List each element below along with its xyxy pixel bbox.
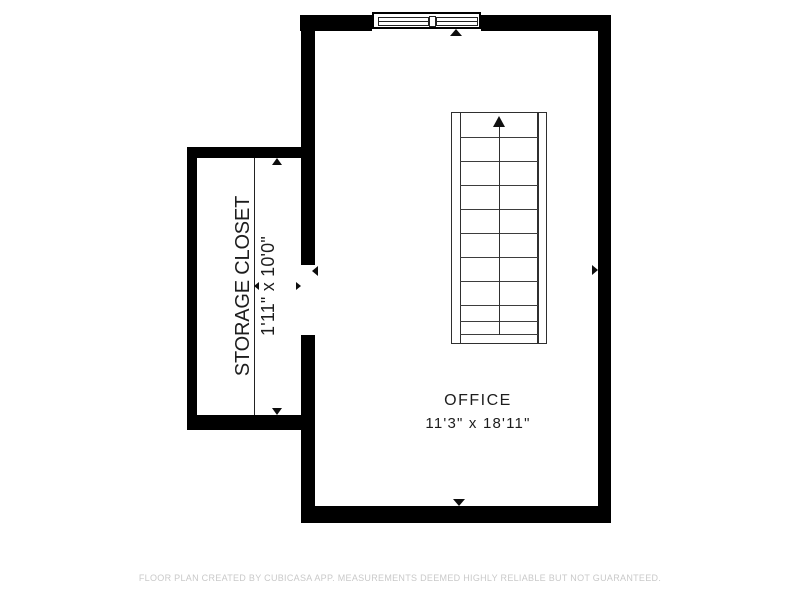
stair-stringer-right [537,113,538,343]
office-dim-arrow-down-icon [453,499,465,506]
stair-stringer-left [460,113,461,343]
closet-room-dimensions: 1'11" x 10'0" [256,196,281,376]
closet-room-label: STORAGE CLOSET 1'11" x 10'0" [231,196,281,376]
office-right-wall [598,15,611,523]
staircase [451,112,547,344]
stair-up-arrow-icon [493,116,505,127]
office-room-name: OFFICE [425,389,530,412]
window [372,12,481,29]
window-glass-line [379,21,428,22]
floor-plan-canvas: OFFICE 11'3" x 18'11" STORAGE CLOSET 1'1… [0,0,800,600]
office-left-wall-lower [301,335,315,523]
closet-dim-arrow-right-icon [296,282,301,290]
window-glass-line [437,21,477,22]
closet-room-name: STORAGE CLOSET [231,196,256,376]
office-room-label: OFFICE 11'3" x 18'11" [425,389,530,435]
closet-dim-arrow-down-icon [272,408,282,415]
closet-left-wall [187,147,197,430]
footer-disclaimer: FLOOR PLAN CREATED BY CUBICASA APP. MEAS… [0,571,800,585]
closet-bottom-wall [187,415,301,430]
closet-top-wall [187,147,301,158]
office-room-dimensions: 11'3" x 18'11" [425,412,530,435]
office-dim-arrow-right-icon [592,265,598,275]
office-top-wall-right [481,15,611,31]
window-pane-right [436,17,478,26]
office-left-wall-upper [301,15,315,265]
office-bottom-wall [301,506,611,523]
window-pane-left [378,17,429,26]
closet-dim-arrow-up-icon [272,158,282,165]
window-mullion [429,16,436,27]
office-dim-arrow-up-icon [450,29,462,36]
stair-center-line [499,121,501,335]
office-dim-arrow-left-icon [312,266,318,276]
